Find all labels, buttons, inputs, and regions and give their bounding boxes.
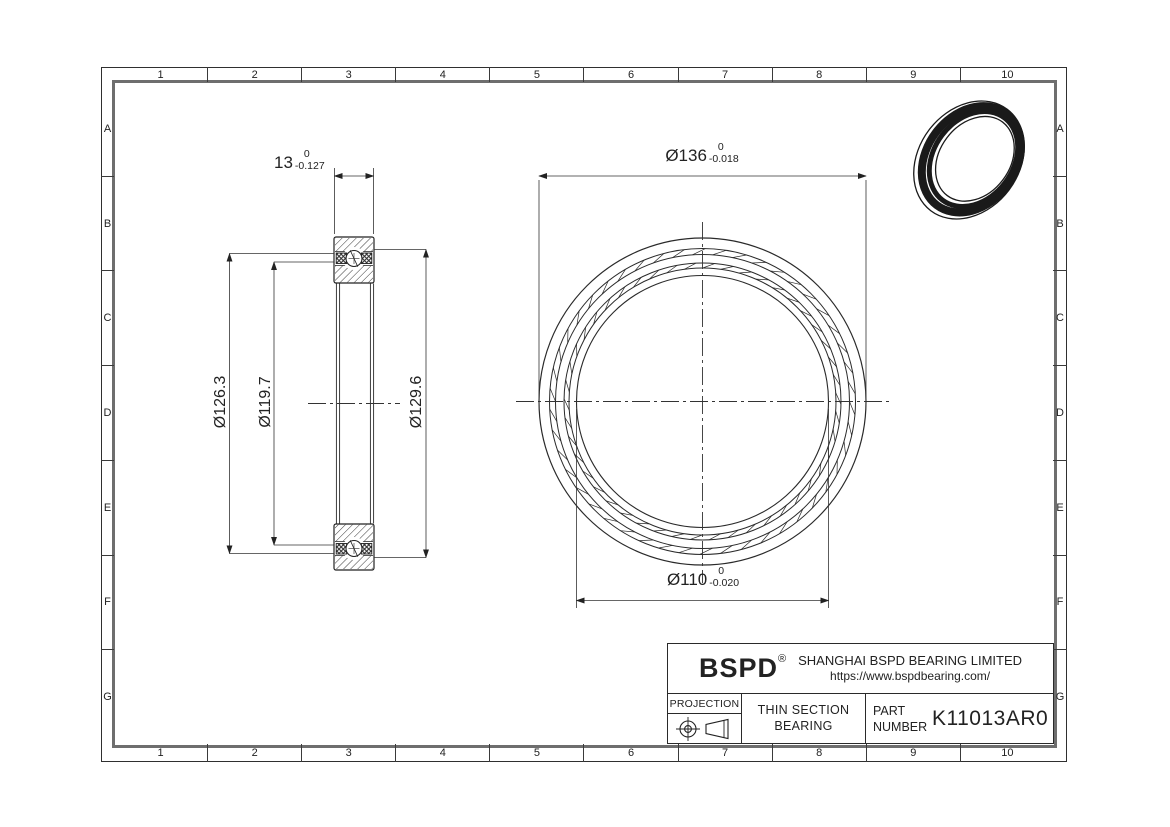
side-view-section (230, 168, 427, 570)
front-view (516, 176, 890, 608)
drawing-sheet: BSPD® SHANGHAI BSPD BEARING LIMITED http… (0, 0, 1170, 827)
width-dimension-lines (335, 168, 374, 234)
bore-diameter-label: Ø1100-0.020 (667, 566, 739, 588)
pitch-dimension-label: Ø129.6 (408, 376, 426, 428)
inner-race-dimension-label: Ø119.7 (257, 376, 275, 427)
outer-diameter-label: Ø1360-0.018 (665, 142, 738, 164)
drawing-canvas (0, 0, 1170, 827)
bottom-ring-section (334, 524, 374, 570)
bearing-3d-pictorial (891, 79, 1047, 241)
width-dimension-label: 130-0.127 (274, 149, 325, 171)
top-ring-section (334, 237, 374, 283)
outer-race-dimension-label: Ø126.3 (212, 376, 230, 428)
